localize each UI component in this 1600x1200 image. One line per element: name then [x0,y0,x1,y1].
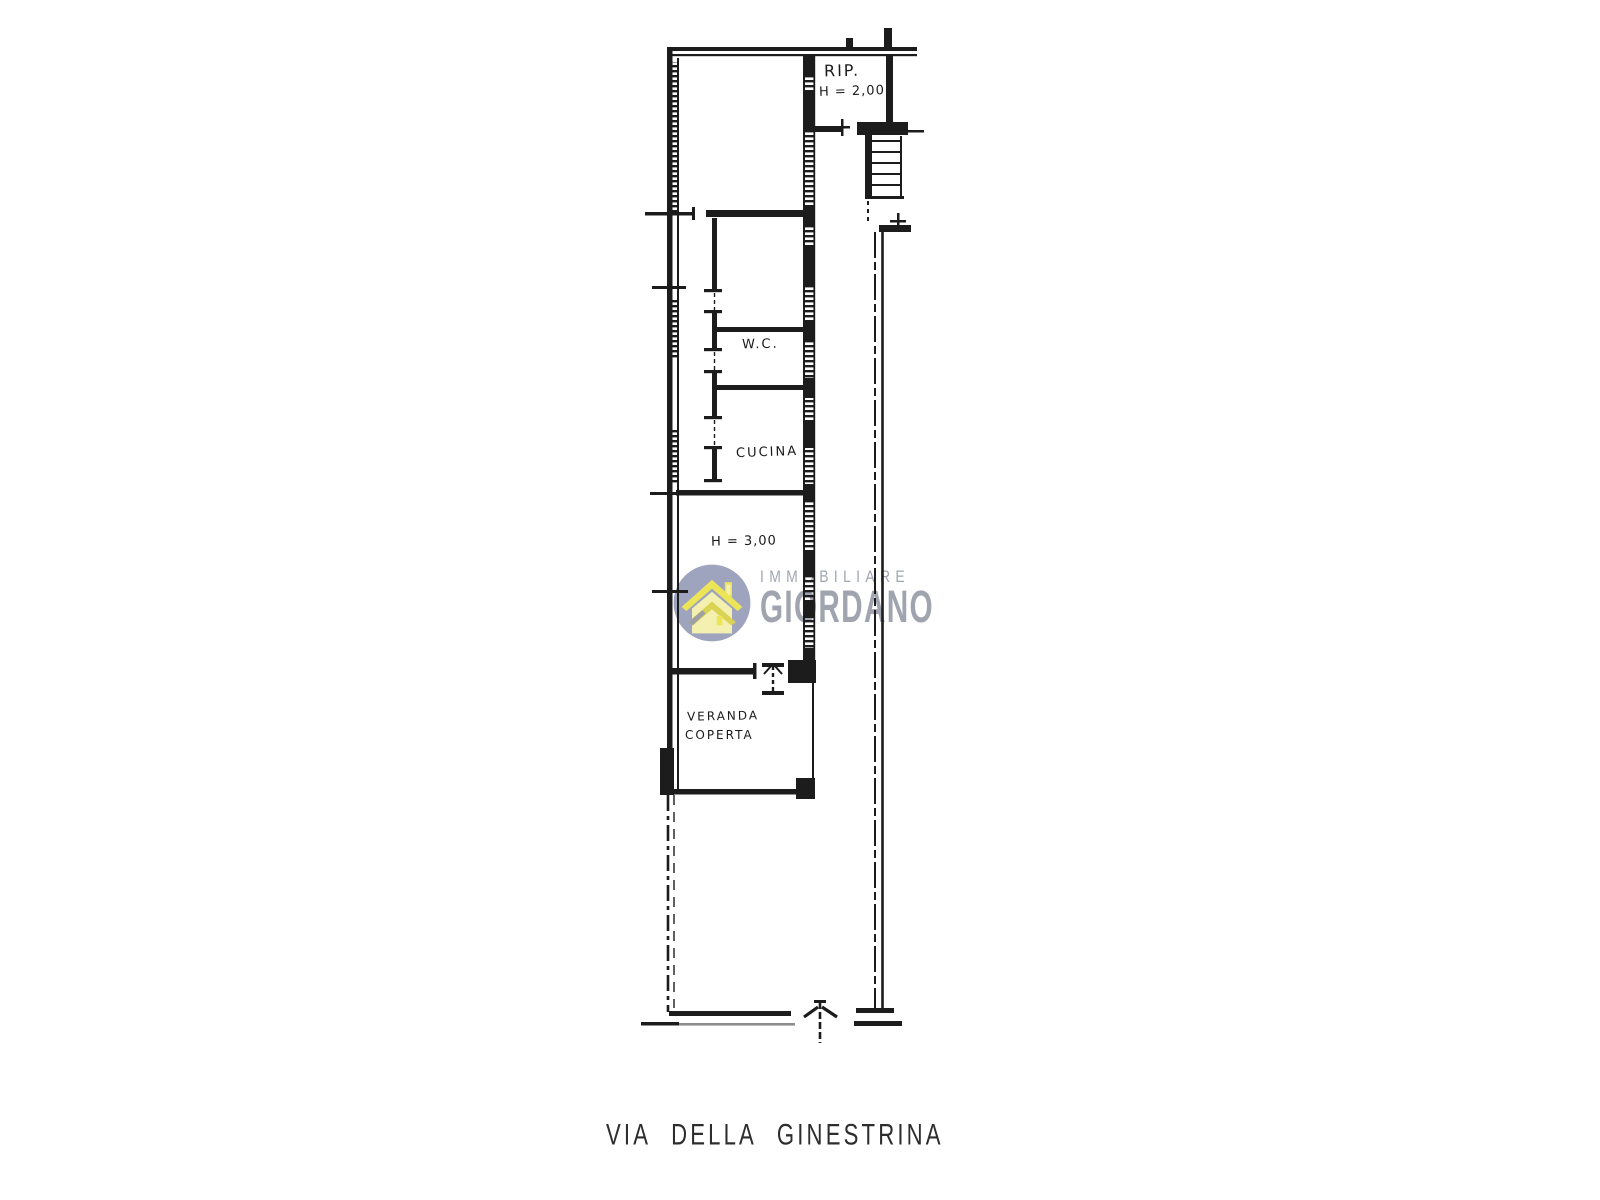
label-main-height: H = 3,00 [711,533,777,549]
street-label: VIA DELLA GINESTRINA [606,1118,944,1152]
stairs-group [857,122,924,232]
walls-group [645,28,917,799]
label-veranda-line2: COPERTA [685,728,754,742]
label-rip-height: H = 2,00 [819,83,885,100]
floor-plan-drawing [0,0,1600,1200]
label-wc: W.C. [742,337,779,353]
label-cucina: CUCINA [736,444,799,461]
floor-plan-page: IMMOBILIARE GIORDANO [0,0,1600,1200]
label-veranda-line1: VERANDA [687,708,759,723]
label-rip: RIP. [824,61,860,81]
boundary-group [641,232,902,1043]
